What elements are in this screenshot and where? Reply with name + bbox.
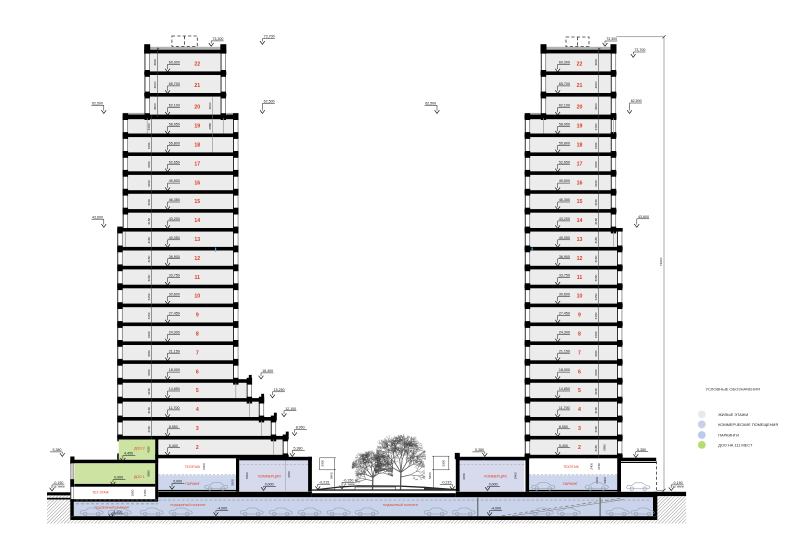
- svg-text:43,200: 43,200: [169, 217, 180, 221]
- svg-text:-4,000: -4,000: [217, 507, 227, 511]
- svg-text:40,050: 40,050: [169, 236, 180, 240]
- svg-text:ТЕХЭТАЖ: ТЕХЭТАЖ: [563, 465, 578, 469]
- svg-text:3150: 3150: [147, 142, 151, 149]
- svg-text:21: 21: [577, 83, 583, 89]
- svg-text:5400: 5400: [329, 472, 333, 479]
- svg-text:КОММЕРЦИЯ: КОММЕРЦИЯ: [258, 474, 281, 478]
- svg-text:3150: 3150: [594, 161, 598, 168]
- svg-text:15,250: 15,250: [274, 388, 285, 392]
- svg-text:0,900: 0,900: [114, 476, 123, 480]
- svg-text:8: 8: [578, 332, 581, 338]
- svg-text:5,380: 5,380: [53, 448, 62, 452]
- svg-text:12: 12: [577, 256, 583, 262]
- svg-text:27,450: 27,450: [169, 312, 180, 316]
- svg-text:3: 3: [196, 426, 199, 432]
- svg-text:3150: 3150: [594, 236, 598, 243]
- svg-text:18: 18: [194, 143, 200, 149]
- svg-text:1850: 1850: [131, 489, 135, 496]
- svg-text:43,600: 43,600: [92, 215, 103, 219]
- svg-text:2880: 2880: [208, 122, 212, 129]
- svg-text:19: 19: [194, 124, 200, 130]
- svg-text:0,000: 0,000: [489, 483, 498, 487]
- svg-text:8,950: 8,950: [296, 426, 305, 430]
- svg-text:-0,215: -0,215: [319, 480, 329, 484]
- svg-text:18,000: 18,000: [169, 368, 180, 372]
- svg-text:3150: 3150: [147, 236, 151, 243]
- svg-text:4,450: 4,450: [124, 452, 133, 456]
- svg-text:17: 17: [577, 161, 583, 167]
- svg-text:3150: 3150: [147, 255, 151, 262]
- svg-text:3150: 3150: [147, 199, 151, 206]
- svg-text:3150: 3150: [594, 218, 598, 225]
- svg-text:9: 9: [578, 313, 581, 319]
- svg-text:3150: 3150: [594, 444, 598, 451]
- svg-text:11: 11: [195, 275, 201, 281]
- svg-text:69,300: 69,300: [559, 60, 570, 64]
- svg-text:3150: 3150: [594, 142, 598, 149]
- svg-text:ур. земли: ур. земли: [54, 486, 66, 489]
- svg-text:16: 16: [194, 180, 200, 186]
- svg-text:ПАРКИНГ: ПАРКИНГ: [563, 482, 578, 486]
- svg-text:6: 6: [578, 369, 581, 375]
- svg-text:3000: 3000: [231, 479, 235, 486]
- svg-text:62,500: 62,500: [264, 100, 275, 104]
- svg-text:14: 14: [194, 218, 200, 224]
- svg-text:65,700: 65,700: [559, 82, 570, 86]
- svg-text:58,950: 58,950: [559, 123, 570, 127]
- svg-text:3150: 3150: [594, 331, 598, 338]
- svg-text:3600: 3600: [153, 81, 157, 88]
- svg-text:-4,200: -4,200: [112, 510, 122, 514]
- svg-text:2150: 2150: [597, 463, 601, 470]
- svg-text:3600: 3600: [594, 58, 598, 65]
- svg-text:ур. земли: ур. земли: [344, 483, 356, 486]
- svg-text:33,750: 33,750: [559, 274, 570, 278]
- svg-text:ПАРКИНГИ: ПАРКИНГИ: [718, 432, 739, 437]
- svg-text:3150: 3150: [147, 369, 151, 376]
- svg-text:-4,000: -4,000: [491, 507, 501, 511]
- svg-text:3150: 3150: [147, 180, 151, 187]
- svg-text:6: 6: [196, 369, 199, 375]
- svg-text:13: 13: [194, 237, 200, 243]
- svg-text:52,650: 52,650: [169, 160, 180, 164]
- svg-text:21,150: 21,150: [169, 349, 180, 353]
- svg-text:65,700: 65,700: [169, 82, 180, 86]
- svg-text:ТЕХЭТАЖ: ТЕХЭТАЖ: [185, 465, 200, 469]
- svg-text:4150: 4150: [287, 471, 291, 478]
- svg-text:62,100: 62,100: [169, 104, 180, 108]
- svg-text:3600: 3600: [594, 81, 598, 88]
- svg-text:7: 7: [196, 350, 199, 356]
- svg-text:10: 10: [577, 294, 583, 300]
- svg-text:21: 21: [194, 83, 200, 89]
- svg-text:74600: 74600: [659, 257, 663, 266]
- svg-text:3000: 3000: [208, 102, 212, 109]
- svg-text:18,400: 18,400: [262, 369, 273, 373]
- svg-text:62,500: 62,500: [425, 101, 436, 105]
- svg-text:8: 8: [196, 332, 199, 338]
- svg-text:3600: 3600: [153, 103, 157, 110]
- svg-text:46,350: 46,350: [169, 198, 180, 202]
- svg-text:КОММЕРЦИЯ: КОММЕРЦИЯ: [484, 474, 507, 478]
- svg-text:ДОО НА 111 МЕСТ: ДОО НА 111 МЕСТ: [718, 442, 753, 447]
- svg-text:3150: 3150: [147, 161, 151, 168]
- svg-text:73,300: 73,300: [606, 37, 617, 41]
- svg-text:14,850: 14,850: [169, 387, 180, 391]
- svg-text:7: 7: [578, 350, 581, 356]
- svg-text:3600: 3600: [594, 103, 598, 110]
- svg-text:13: 13: [577, 237, 583, 243]
- svg-text:58,950: 58,950: [169, 123, 180, 127]
- svg-text:8,550: 8,550: [169, 425, 178, 429]
- svg-text:20: 20: [194, 105, 200, 111]
- svg-text:27,450: 27,450: [559, 312, 570, 316]
- svg-text:ТЕХ ЭТАЖ: ТЕХ ЭТАЖ: [92, 490, 108, 494]
- svg-text:46,350: 46,350: [559, 198, 570, 202]
- svg-text:ДОО 2: ДОО 2: [134, 447, 145, 451]
- svg-text:52,650: 52,650: [559, 160, 570, 164]
- svg-text:30,600: 30,600: [169, 293, 180, 297]
- svg-text:3150: 3150: [594, 312, 598, 319]
- svg-text:ур. земли: ур. земли: [673, 486, 685, 489]
- svg-text:4: 4: [196, 407, 199, 413]
- svg-text:3150: 3150: [594, 388, 598, 395]
- svg-text:22: 22: [194, 62, 200, 68]
- svg-text:10: 10: [194, 294, 200, 300]
- svg-text:0,000: 0,000: [173, 479, 182, 483]
- svg-text:3150: 3150: [147, 312, 151, 319]
- svg-text:ДОО 1: ДОО 1: [134, 475, 145, 479]
- svg-text:5400: 5400: [514, 472, 518, 479]
- svg-text:12,100: 12,100: [285, 407, 296, 411]
- svg-text:15: 15: [577, 199, 583, 205]
- svg-text:0,000: 0,000: [265, 483, 274, 487]
- svg-text:-0,150: -0,150: [53, 481, 63, 485]
- svg-text:2: 2: [196, 445, 199, 451]
- svg-text:73,300: 73,300: [212, 37, 223, 41]
- svg-text:43,600: 43,600: [638, 215, 649, 219]
- svg-text:24,300: 24,300: [559, 330, 570, 334]
- svg-text:36,900: 36,900: [169, 255, 180, 259]
- svg-text:3150: 3150: [147, 425, 151, 432]
- svg-text:36,900: 36,900: [559, 255, 570, 259]
- svg-text:3150: 3150: [594, 350, 598, 357]
- svg-text:2: 2: [578, 445, 581, 451]
- svg-text:5,400: 5,400: [169, 444, 178, 448]
- svg-text:3150: 3150: [147, 407, 151, 414]
- svg-text:62,500: 62,500: [631, 99, 642, 103]
- svg-text:3: 3: [578, 426, 581, 432]
- svg-text:49,500: 49,500: [169, 179, 180, 183]
- svg-text:11: 11: [577, 275, 583, 281]
- svg-text:3150: 3150: [147, 350, 151, 357]
- svg-text:2150: 2150: [143, 489, 147, 496]
- svg-text:73,700: 73,700: [264, 35, 275, 39]
- svg-text:19: 19: [577, 124, 583, 130]
- svg-text:9: 9: [196, 313, 199, 319]
- svg-text:5: 5: [196, 388, 199, 394]
- svg-text:3150: 3150: [147, 331, 151, 338]
- svg-text:3150: 3150: [147, 218, 151, 225]
- svg-text:43,200: 43,200: [559, 217, 570, 221]
- svg-text:62,100: 62,100: [559, 104, 570, 108]
- svg-text:УСЛОВНЫЕ ОБОЗНАЧЕНИЯ: УСЛОВНЫЕ ОБОЗНАЧЕНИЯ: [706, 387, 760, 392]
- svg-text:ПОДЗЕМНЫЙ ПАРКИНГ: ПОДЗЕМНЫЙ ПАРКИНГ: [170, 503, 206, 507]
- svg-text:4150: 4150: [462, 473, 466, 480]
- svg-text:3150: 3150: [594, 274, 598, 281]
- svg-text:3150: 3150: [594, 293, 598, 300]
- svg-text:-0,150: -0,150: [672, 481, 682, 485]
- svg-text:-0,150: -0,150: [343, 478, 353, 482]
- svg-text:8,550: 8,550: [559, 425, 568, 429]
- svg-text:11,700: 11,700: [559, 406, 570, 410]
- svg-text:5400: 5400: [245, 472, 249, 479]
- svg-text:3150: 3150: [594, 180, 598, 187]
- svg-text:55,800: 55,800: [169, 141, 180, 145]
- svg-text:3150: 3150: [594, 369, 598, 376]
- svg-text:3150: 3150: [594, 123, 598, 130]
- svg-text:4150: 4150: [146, 446, 150, 453]
- svg-text:40,050: 40,050: [559, 236, 570, 240]
- svg-text:5,380: 5,380: [294, 447, 303, 451]
- svg-text:ПАРКИНГ: ПАРКИНГ: [185, 482, 200, 486]
- svg-text:5400: 5400: [428, 472, 432, 479]
- svg-text:3150: 3150: [594, 425, 598, 432]
- svg-text:18,000: 18,000: [559, 368, 570, 372]
- svg-text:5: 5: [578, 388, 581, 394]
- svg-text:3300: 3300: [603, 477, 607, 484]
- svg-text:14,850: 14,850: [559, 387, 570, 391]
- svg-text:4: 4: [578, 407, 581, 413]
- svg-text:5,380: 5,380: [475, 448, 484, 452]
- svg-text:11,700: 11,700: [169, 406, 180, 410]
- svg-text:21,150: 21,150: [559, 349, 570, 353]
- svg-text:3150: 3150: [147, 293, 151, 300]
- svg-text:15: 15: [194, 199, 200, 205]
- svg-text:3550: 3550: [146, 470, 150, 477]
- svg-text:20: 20: [577, 105, 583, 111]
- svg-text:24,300: 24,300: [169, 330, 180, 334]
- svg-text:-0,215: -0,215: [441, 481, 451, 485]
- svg-text:33,750: 33,750: [169, 274, 180, 278]
- svg-text:2880: 2880: [603, 444, 607, 451]
- svg-text:30,600: 30,600: [559, 293, 570, 297]
- svg-text:18: 18: [577, 143, 583, 149]
- svg-text:2400: 2400: [589, 463, 593, 470]
- svg-text:КОММЕРЧЕСКИЕ ПОМЕЩЕНИЯ: КОММЕРЧЕСКИЕ ПОМЕЩЕНИЯ: [718, 422, 778, 427]
- svg-text:3150: 3150: [594, 407, 598, 414]
- svg-text:5,380: 5,380: [637, 448, 646, 452]
- svg-text:12: 12: [194, 256, 200, 262]
- svg-text:5,400: 5,400: [559, 444, 568, 448]
- svg-text:2400: 2400: [202, 463, 206, 470]
- svg-text:3150: 3150: [594, 255, 598, 262]
- svg-text:3300: 3300: [321, 460, 325, 467]
- svg-text:3150: 3150: [594, 199, 598, 206]
- svg-text:3150: 3150: [147, 388, 151, 395]
- svg-text:55,800: 55,800: [559, 141, 570, 145]
- svg-text:ПОДЗЕМНЫЙ ПАРКИНГ: ПОДЗЕМНЫЙ ПАРКИНГ: [94, 506, 130, 510]
- svg-text:ЖИЛЫЕ ЭТАЖИ: ЖИЛЫЕ ЭТАЖИ: [718, 412, 748, 417]
- svg-text:3150: 3150: [147, 123, 151, 130]
- svg-text:14: 14: [577, 218, 583, 224]
- svg-text:16: 16: [577, 180, 583, 186]
- svg-text:3600: 3600: [153, 58, 157, 65]
- svg-text:17: 17: [194, 161, 200, 167]
- svg-text:49,500: 49,500: [559, 179, 570, 183]
- svg-text:62,500: 62,500: [92, 101, 103, 105]
- svg-text:3150: 3150: [147, 274, 151, 281]
- svg-text:3300: 3300: [442, 460, 446, 467]
- svg-text:22: 22: [577, 62, 583, 68]
- svg-text:ПОДЗЕМНЫЙ ПАРКИНГ: ПОДЗЕМНЫЙ ПАРКИНГ: [383, 503, 419, 507]
- svg-text:69,300: 69,300: [169, 60, 180, 64]
- svg-text:73,700: 73,700: [634, 48, 645, 52]
